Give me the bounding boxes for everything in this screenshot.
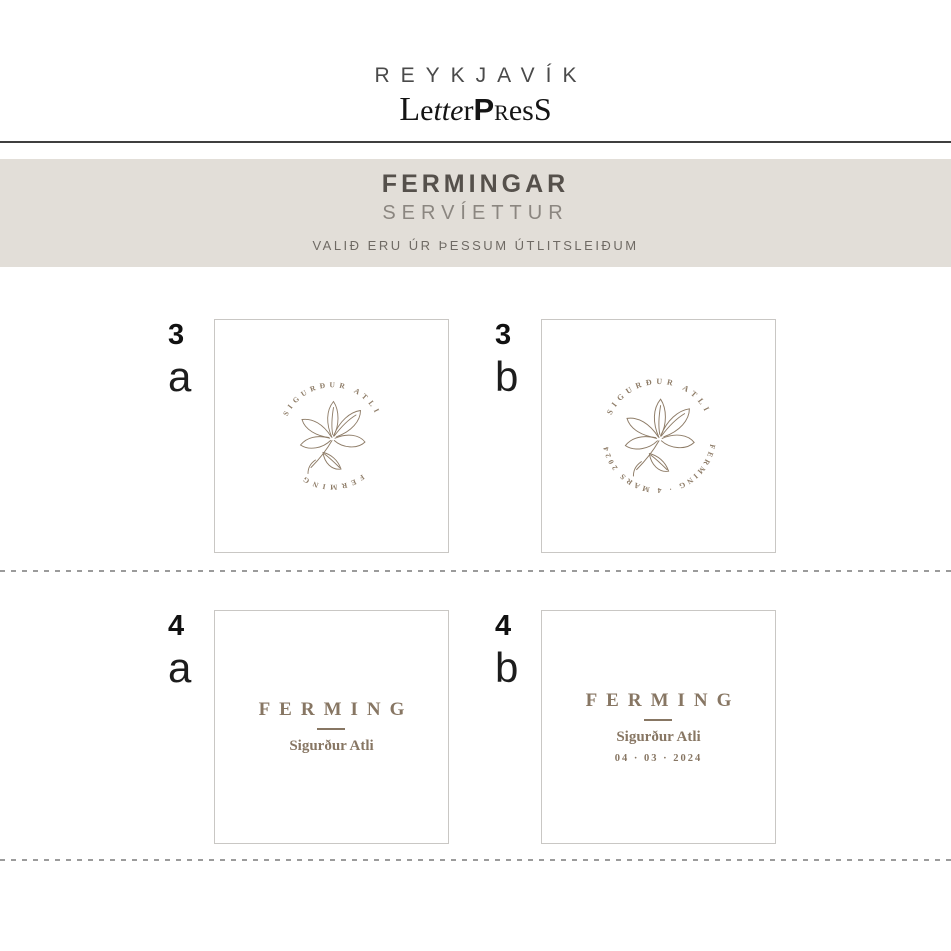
design-number: 4 [168, 610, 214, 643]
wordmark-part: r [463, 94, 473, 127]
wordmark-part: L [399, 91, 420, 128]
design-number: 3 [168, 319, 214, 352]
design-card-4b: FERMING Sigurður Atli 04 · 03 · 2024 [541, 610, 776, 844]
page-title: FERMINGAR [0, 170, 951, 199]
wordmark-part: es [509, 94, 534, 127]
ornament-rule [644, 719, 672, 721]
design-label: 4 a [168, 610, 214, 844]
wordmark-part: S [534, 91, 552, 127]
brand-wordmark: LetterPResS [0, 91, 951, 128]
design-number: 3 [495, 319, 541, 352]
ferming-title: FERMING [577, 690, 741, 712]
brand-logo: REYKJAVÍK LetterPResS [0, 0, 951, 128]
design-label: 4 b [495, 610, 541, 844]
design-letter: a [168, 356, 214, 398]
design-card-4a: FERMING Sigurður Atli [214, 610, 449, 844]
wordmark-part: P [473, 92, 494, 127]
wordmark-part: e [420, 94, 433, 127]
arc-text-top: SIGURÐUR ATLI [604, 377, 712, 416]
circular-monogram-3a: SIGURÐUR ATLI FERMING [257, 361, 407, 511]
wordmark-part: tte [433, 94, 463, 127]
wordmark-part: R [494, 100, 509, 125]
stacked-monogram-4b: FERMING Sigurður Atli 04 · 03 · 2024 [577, 690, 741, 764]
design-card-3a: SIGURÐUR ATLI FERMING [214, 319, 449, 553]
circular-monogram-3b: SIGURÐUR ATLI FERMING · 4 MARS 2024 [579, 356, 739, 516]
arc-text-top: SIGURÐUR ATLI [280, 380, 382, 417]
person-name: Sigurður Atli [577, 729, 741, 746]
dashed-cut-line [0, 859, 951, 861]
stacked-monogram-4a: FERMING Sigurður Atli [250, 699, 414, 755]
design-row-3: 3 a SIGURÐUR ATLI FERMING [168, 319, 951, 553]
design-number: 4 [495, 610, 541, 643]
header-rule [0, 141, 951, 143]
person-name: Sigurður Atli [250, 738, 414, 755]
design-option-3a: 3 a SIGURÐUR ATLI FERMING [168, 319, 449, 553]
design-card-3b: SIGURÐUR ATLI FERMING · 4 MARS 2024 [541, 319, 776, 553]
ornament-rule [317, 728, 345, 730]
arc-text-bottom: FERMING [297, 473, 365, 492]
magnolia-flower-icon [300, 402, 365, 474]
ceremony-date: 04 · 03 · 2024 [577, 753, 741, 764]
design-label: 3 b [495, 319, 541, 553]
design-letter: a [168, 647, 214, 689]
design-label: 3 a [168, 319, 214, 553]
magnolia-flower-icon [625, 400, 694, 477]
instruction-note: VALIÐ ERU ÚR ÞESSUM ÚTLITSLEIÐUM [0, 238, 951, 253]
title-band: FERMINGAR SERVÍETTUR VALIÐ ERU ÚR ÞESSUM… [0, 159, 951, 267]
design-row-4: 4 a FERMING Sigurður Atli 4 b FERMING Si… [168, 610, 951, 844]
design-option-3b: 3 b SIGURÐUR ATLI FERMING · 4 MARS 2024 [495, 319, 776, 553]
design-letter: b [495, 647, 541, 689]
brand-city: REYKJAVÍK [0, 64, 951, 88]
design-option-4a: 4 a FERMING Sigurður Atli [168, 610, 449, 844]
design-option-4b: 4 b FERMING Sigurður Atli 04 · 03 · 2024 [495, 610, 776, 844]
ferming-title: FERMING [250, 699, 414, 721]
dashed-cut-line [0, 570, 951, 572]
page-subtitle: SERVÍETTUR [0, 202, 951, 225]
design-letter: b [495, 356, 541, 398]
